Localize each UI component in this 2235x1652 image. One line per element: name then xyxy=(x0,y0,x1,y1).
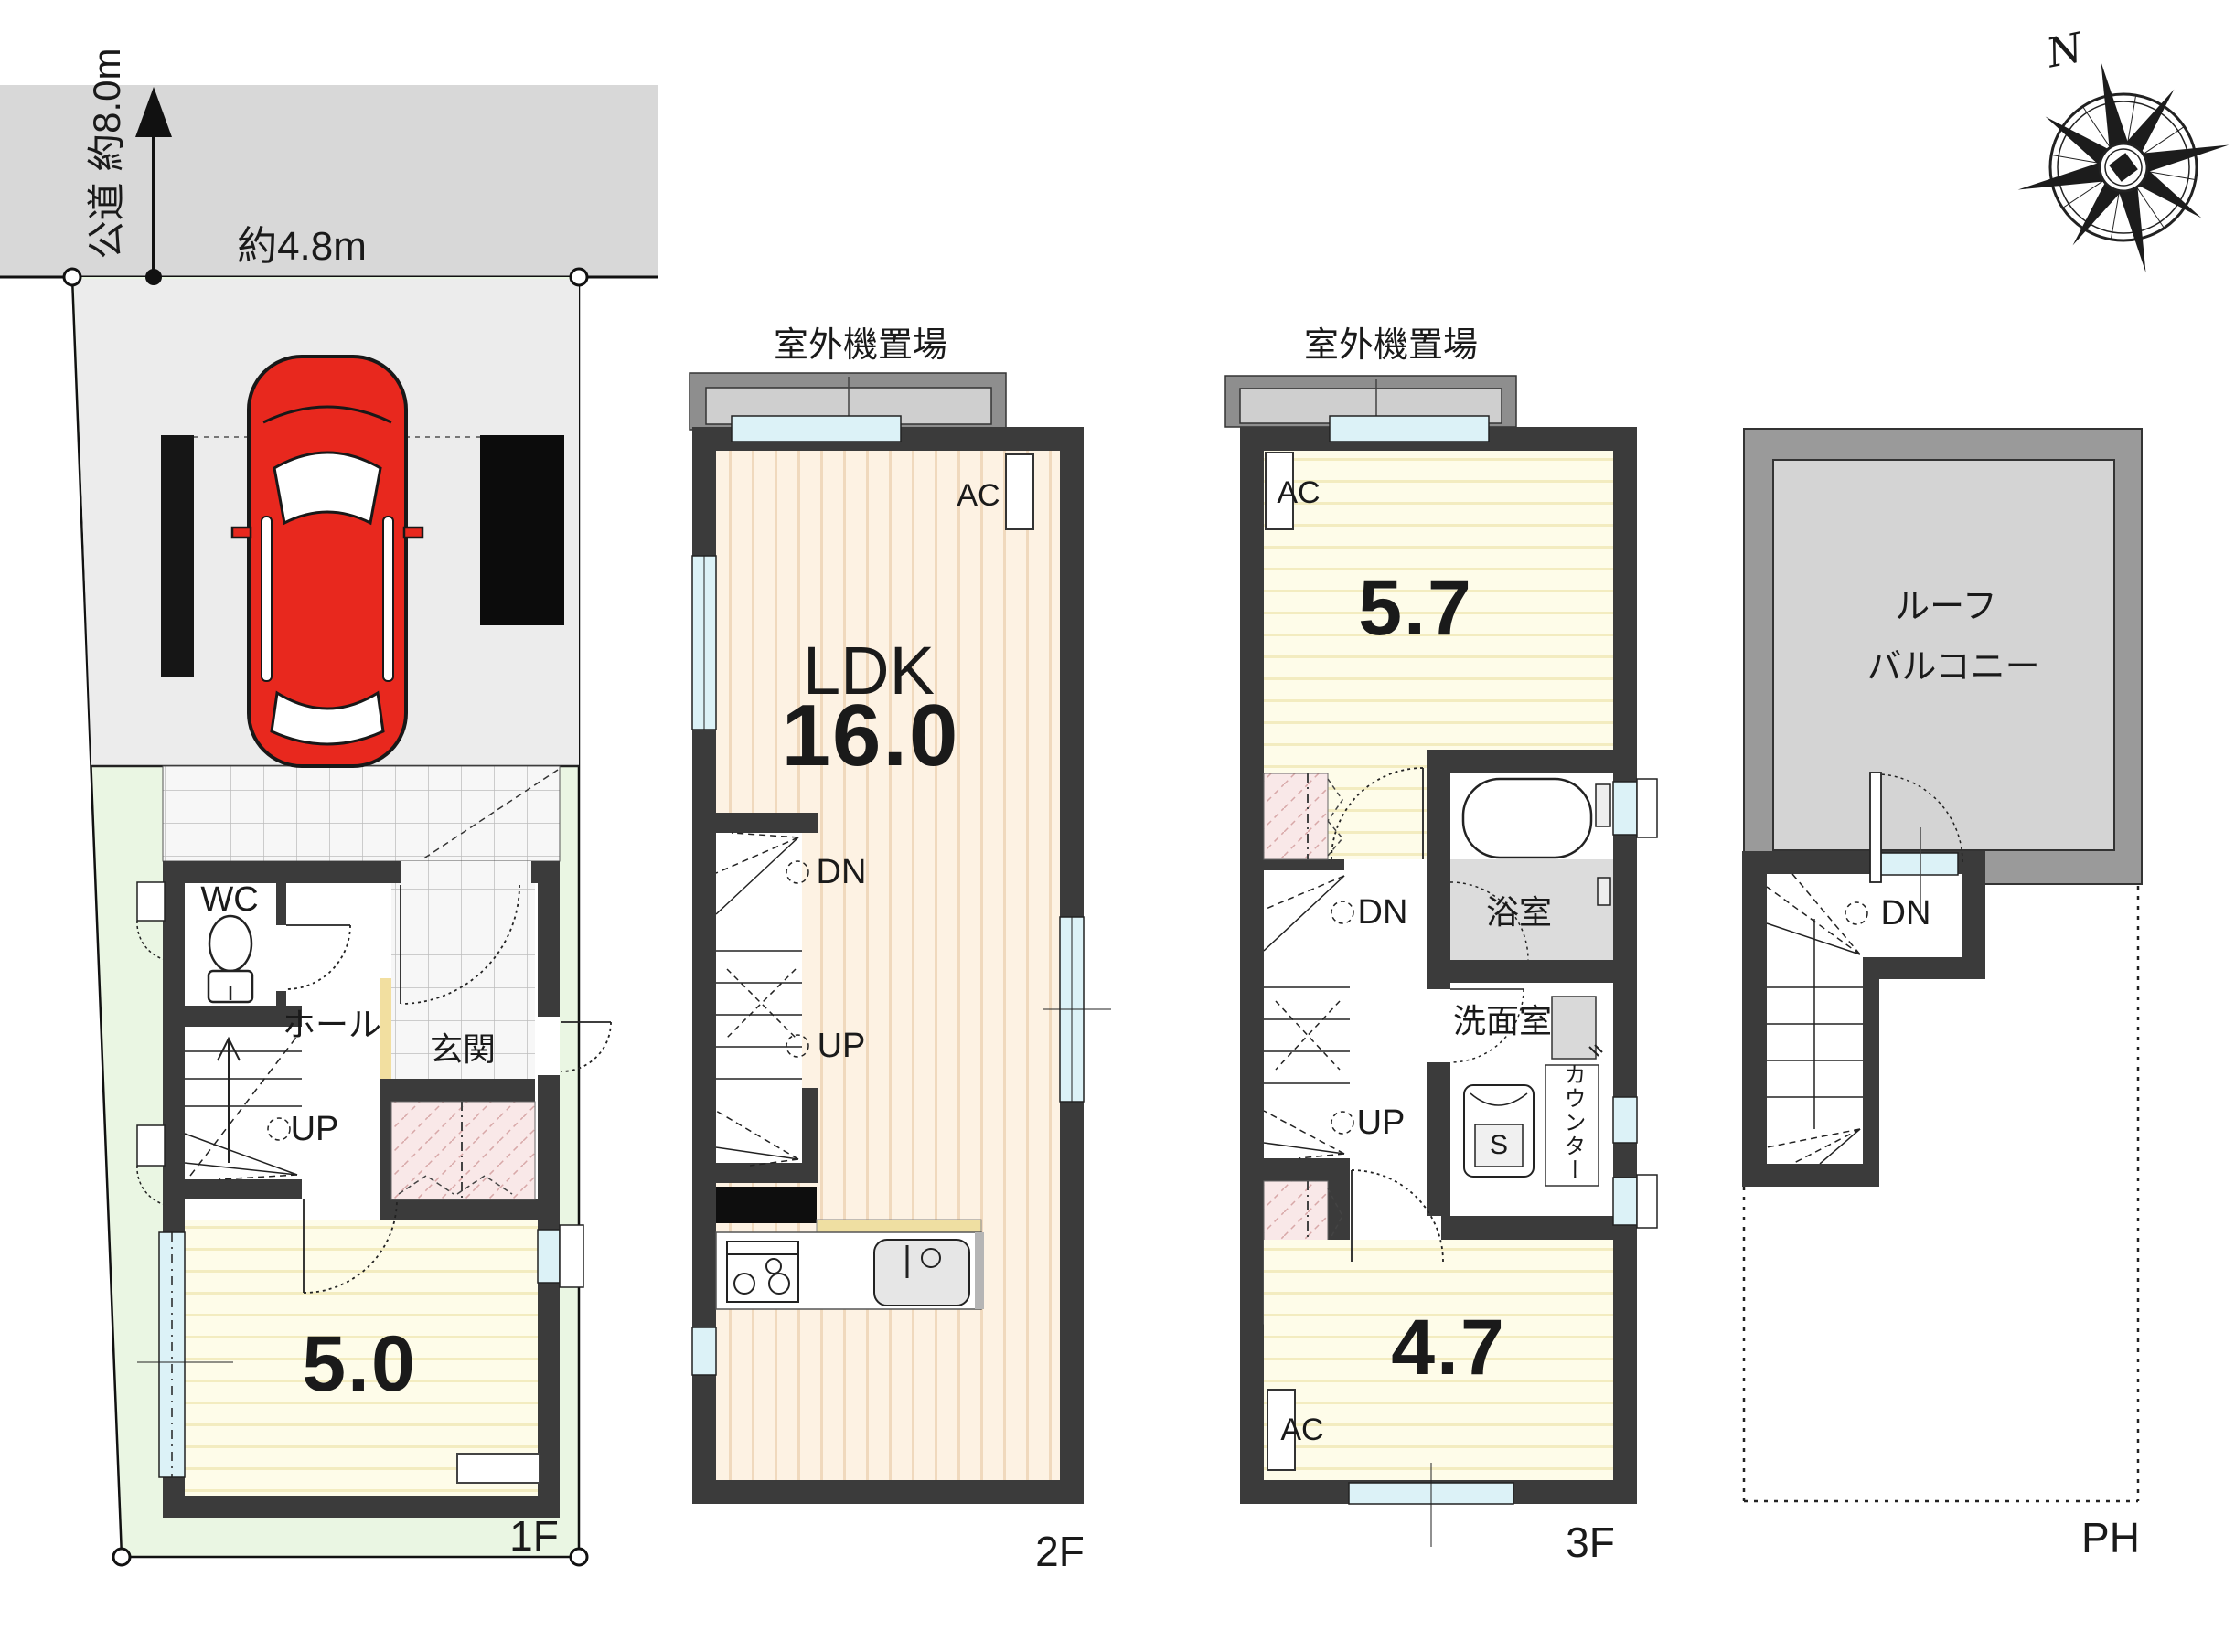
ldk-size-label: 16.0 xyxy=(782,692,960,780)
room5-size-label: 5.0 xyxy=(302,1325,417,1403)
outdoor-unit-label-3f: 室外機置場 xyxy=(1304,328,1478,363)
approach-tiles xyxy=(163,766,560,861)
wc-label: WC xyxy=(200,882,258,917)
floorplan-canvas: 公道 約8.0m 約4.8m N WC ホール 玄関 5.0 UP 1F 室外機… xyxy=(0,0,2235,1652)
washer-label: S xyxy=(1490,1132,1508,1159)
compass-north-label: N xyxy=(2044,27,2087,74)
dn-label-2f: DN xyxy=(817,855,867,890)
counter-label: カウンター xyxy=(1561,1063,1583,1182)
bathtub-icon xyxy=(1463,779,1591,858)
dn-label-3f: DN xyxy=(1358,895,1408,930)
hall-label: ホール xyxy=(283,1008,381,1041)
room57-size-label: 5.7 xyxy=(1358,569,1473,647)
up-label-2f: UP xyxy=(818,1029,866,1063)
bath-label: 浴室 xyxy=(1486,896,1552,929)
entrance-label: 玄関 xyxy=(430,1033,496,1066)
outdoor-unit-label-2f: 室外機置場 xyxy=(774,328,947,363)
lot-width-label: 約4.8m xyxy=(237,227,367,267)
bathroom-3f xyxy=(1450,773,1613,960)
house-1f xyxy=(137,861,611,1518)
up-label-3f: UP xyxy=(1357,1105,1406,1140)
ac-unit-2f xyxy=(1006,454,1033,529)
ac-label-3f-b: AC xyxy=(1280,1414,1323,1445)
sink-icon xyxy=(874,1240,969,1306)
floor-label-1f: 1F xyxy=(509,1515,559,1557)
room47-size-label: 4.7 xyxy=(1391,1308,1506,1387)
roof-balcony-label-2: バルコニー xyxy=(1866,650,2039,685)
road-label: 公道 約8.0m xyxy=(88,48,126,259)
toilet-icon xyxy=(209,916,252,1002)
washroom-label: 洗面室 xyxy=(1453,1005,1552,1038)
house-2f xyxy=(690,373,1111,1504)
ac-label-2f: AC xyxy=(957,480,1000,511)
roof-balcony-label-1: ルーフ xyxy=(1895,590,1997,624)
stairs-3f xyxy=(1264,870,1353,1158)
up-label-1f: UP xyxy=(291,1112,339,1146)
side-wall-left xyxy=(161,435,194,677)
side-wall-right xyxy=(480,435,564,625)
car-icon xyxy=(232,357,422,766)
floor-label-2f: 2F xyxy=(1035,1530,1085,1572)
room5-counter xyxy=(457,1454,540,1483)
compass-rose xyxy=(1995,39,2235,295)
vanity-icon xyxy=(1552,997,1596,1059)
dn-label-ph: DN xyxy=(1881,896,1931,931)
ac-label-3f-a: AC xyxy=(1277,477,1320,508)
floor-label-3f: 3F xyxy=(1566,1521,1615,1563)
floor-label-ph: PH xyxy=(2081,1517,2140,1559)
closet-1f xyxy=(391,1102,535,1199)
